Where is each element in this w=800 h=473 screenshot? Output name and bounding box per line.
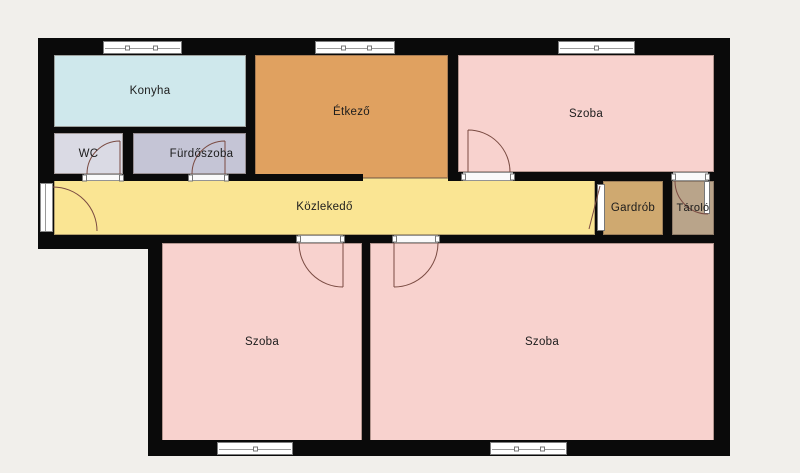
wall-exterior-bl-left xyxy=(148,235,162,456)
room-gardrob xyxy=(603,181,663,235)
window-mullion xyxy=(514,446,519,451)
window-konyha xyxy=(103,41,182,54)
szoba-top-door-threshold xyxy=(463,172,513,181)
window-mullion xyxy=(594,45,599,50)
window-mullion xyxy=(540,446,545,451)
szoba-br-door-threshold xyxy=(394,235,438,243)
wc-door-threshold xyxy=(84,174,122,181)
wall-gardrob-tarolo xyxy=(663,181,672,235)
window-mullion xyxy=(367,45,372,50)
wall-exterior-right xyxy=(714,38,730,456)
window-szoba-br xyxy=(490,442,567,455)
szoba-bl-door-threshold xyxy=(298,235,343,243)
room-wc xyxy=(54,133,123,174)
entrance-door xyxy=(40,183,53,232)
furdoszoba-door-threshold xyxy=(190,174,227,181)
wall-etkezo-szoba xyxy=(448,55,458,181)
window-mullion xyxy=(125,45,130,50)
window-glass-line xyxy=(317,48,393,49)
tarolo-door-threshold xyxy=(673,172,708,181)
wall-konyha-bottom xyxy=(54,127,246,133)
room-szoba-bl xyxy=(162,243,362,441)
tarolo-door-leaf xyxy=(704,181,710,214)
window-etkezo xyxy=(315,41,395,54)
window-mullion xyxy=(153,45,158,50)
wall-wc-furdoszoba xyxy=(123,133,133,174)
window-glass-line xyxy=(492,449,565,450)
window-mullion xyxy=(253,446,258,451)
window-mullion xyxy=(341,45,346,50)
room-konyha xyxy=(54,55,246,127)
room-etkezo xyxy=(255,55,448,178)
floor-plan: Konyha Étkező Szoba WC Fürdőszoba Közlek… xyxy=(0,0,800,473)
window-szoba-top xyxy=(558,41,635,54)
wall-exterior-step xyxy=(38,235,162,249)
wall-konyha-etkezo xyxy=(246,55,255,181)
wall-szoba-divider xyxy=(362,243,370,441)
window-szoba-bl xyxy=(217,442,293,455)
room-szoba-br xyxy=(370,243,714,441)
room-kozlekedo xyxy=(54,178,595,235)
gardrob-door-panel xyxy=(597,184,605,231)
room-furdoszoba xyxy=(133,133,246,174)
room-szoba-top xyxy=(458,55,714,172)
window-glass-line xyxy=(105,48,180,49)
